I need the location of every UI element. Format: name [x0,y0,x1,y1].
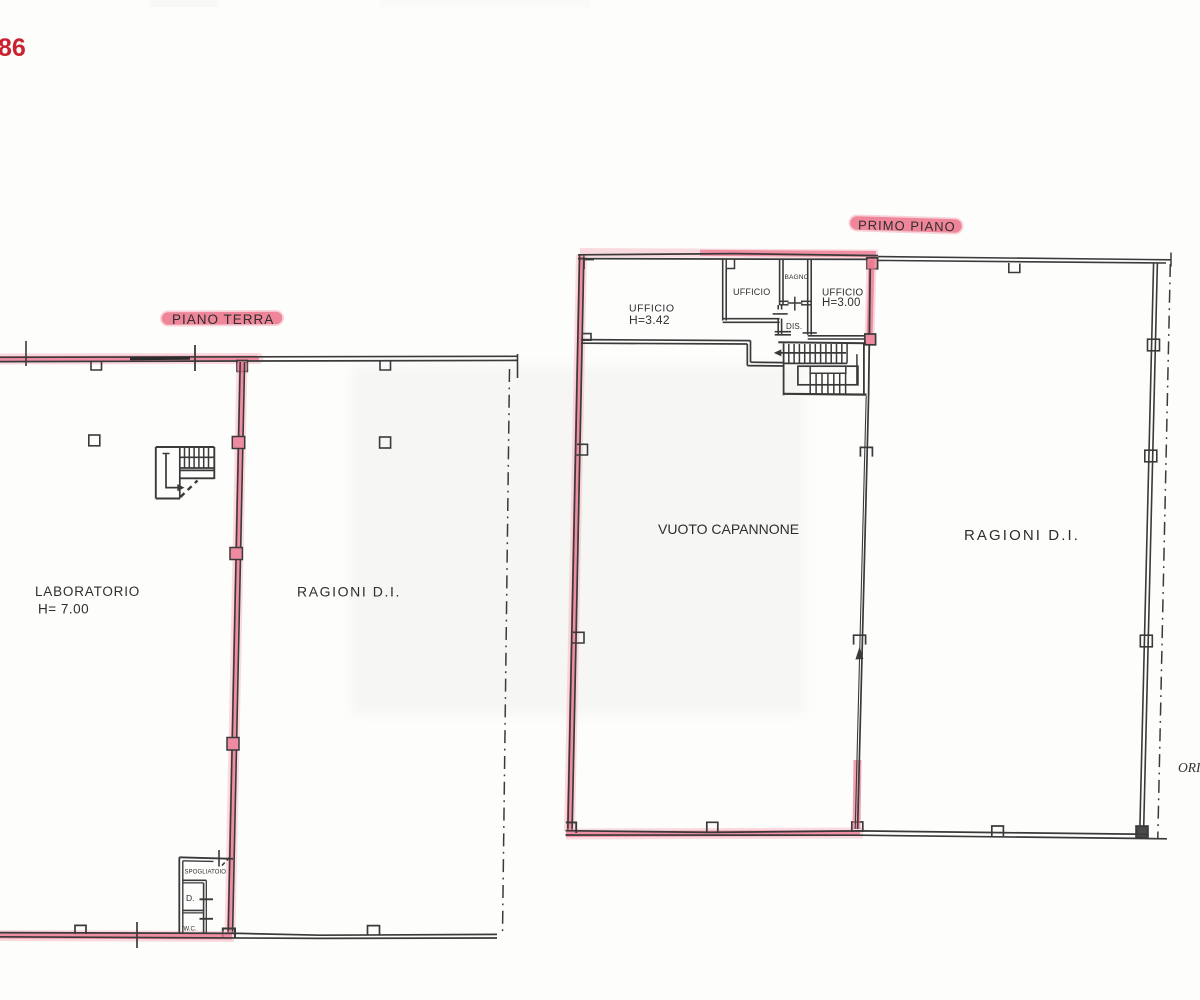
svg-text:ORI: ORI [1178,760,1200,775]
svg-text:VUOTO CAPANNONE: VUOTO CAPANNONE [658,521,799,537]
svg-text:UFFICIO: UFFICIO [733,287,770,297]
svg-text:86: 86 [0,34,26,62]
svg-text:W.C.: W.C. [184,927,197,933]
svg-text:H= 7.00: H= 7.00 [38,602,89,617]
svg-text:H=3.00: H=3.00 [822,297,861,309]
svg-text:RAGIONI D.I.: RAGIONI D.I. [297,584,401,600]
svg-text:BAGNO: BAGNO [785,274,809,281]
svg-text:D.: D. [186,893,195,903]
svg-text:PRIMO PIANO: PRIMO PIANO [858,218,956,235]
svg-text:SPOGLIATOIO: SPOGLIATOIO [185,870,227,876]
svg-text:DIS.: DIS. [786,322,802,331]
svg-text:PIANO TERRA: PIANO TERRA [172,312,274,327]
svg-text:LABORATORIO: LABORATORIO [35,584,140,599]
svg-text:RAGIONI D.I.: RAGIONI D.I. [964,527,1080,544]
svg-text:H=3.42: H=3.42 [629,313,670,327]
